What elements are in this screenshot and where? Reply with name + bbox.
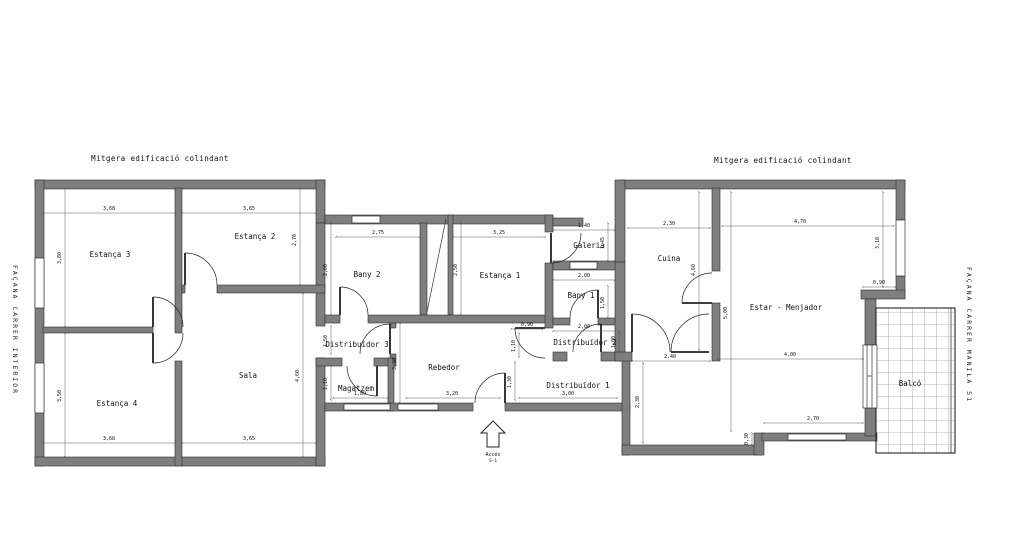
floorplan-page: 3,68 3,65 3,80 2,70 3,50 3,68 3,65 4,60 … xyxy=(0,0,1024,541)
dim-label: 1,50 xyxy=(600,297,606,309)
wall-segment xyxy=(545,215,553,232)
door-arc xyxy=(671,314,709,352)
dim-label: 3,20 xyxy=(446,391,458,397)
room-label-distribuidor2: Distribuïdor 2 xyxy=(553,338,616,347)
window xyxy=(35,258,44,308)
room-label-magatzem: Magatzem xyxy=(338,384,375,393)
wall-segment xyxy=(217,285,325,293)
dim-label: 3,10 xyxy=(875,237,881,249)
wall-segment xyxy=(615,352,632,361)
mitgera-label-right: Mitgera edificació colindant xyxy=(714,156,852,165)
wall-segment xyxy=(553,318,570,325)
door-arc xyxy=(153,333,183,363)
wall-segment xyxy=(35,180,325,189)
dim-label: 1,10 xyxy=(511,340,517,352)
dim-label: 2,70 xyxy=(292,234,298,246)
dim-label: 5,00 xyxy=(723,307,729,319)
wall-segment xyxy=(316,180,325,223)
wall-segment xyxy=(622,445,762,455)
dim-label: 3,25 xyxy=(493,230,505,236)
wall-segment xyxy=(615,180,625,262)
window xyxy=(344,404,390,410)
room-label-rebedor: Rebedor xyxy=(428,363,460,372)
room-label-balco: Balcó xyxy=(899,379,922,388)
dim-label: 2,75 xyxy=(372,230,384,236)
wall-segment xyxy=(712,303,720,361)
wall-segment xyxy=(861,290,905,299)
dim-label: 3,80 xyxy=(57,252,63,264)
dim-label: 2,30 xyxy=(635,396,641,408)
dim-label: 2,50 xyxy=(453,264,459,276)
door-arc xyxy=(632,314,670,352)
dim-label: 2,30 xyxy=(663,221,675,227)
wall-segment xyxy=(325,315,340,323)
door-arc xyxy=(185,253,217,285)
dim-label: 3,00 xyxy=(562,391,574,397)
room-label-estanca3: Estança 3 xyxy=(90,250,131,259)
mitgera-label-left: Mitgera edificació colindant xyxy=(91,154,229,163)
dim-label: 3,50 xyxy=(57,390,63,402)
wall-segment xyxy=(553,352,567,361)
room-label-distribuidor3: Distribuïdor 3 xyxy=(325,340,388,349)
dim-label: 2,70 xyxy=(807,416,819,422)
dim-label: 3,65 xyxy=(243,206,255,212)
dim-label: 0,90 xyxy=(873,280,885,286)
annotations: Mitgera edificació colindant Mitgera edi… xyxy=(11,154,973,464)
wall-segment xyxy=(316,358,342,366)
wall-segment xyxy=(316,358,325,466)
wall-segment xyxy=(420,223,427,315)
dim-label: 0,90 xyxy=(521,322,533,328)
entrance-arrow-icon xyxy=(481,421,505,447)
facana-label-left: FAÇANA CARRER INTERIOR xyxy=(11,265,19,395)
wall-segment xyxy=(175,361,182,466)
window xyxy=(35,363,44,413)
room-label-sala: Sala xyxy=(239,371,257,380)
room-label-distribuidor1: Distribuïdor 1 xyxy=(546,381,609,390)
dim-label: 1,40 xyxy=(578,223,590,229)
wall-segment xyxy=(35,180,44,466)
room-label-estanca1: Estança 1 xyxy=(480,271,521,280)
door-arc xyxy=(475,373,505,403)
dim-label: 4,70 xyxy=(794,219,806,225)
floorplan-drawing: 3,68 3,65 3,80 2,70 3,50 3,68 3,65 4,60 … xyxy=(0,0,1024,541)
window xyxy=(896,220,905,276)
wall-segment xyxy=(896,180,905,220)
window xyxy=(570,262,597,269)
dim-label: 2,60 xyxy=(323,264,329,276)
room-label-estanca4: Estança 4 xyxy=(97,399,138,408)
dim-label: 4,60 xyxy=(295,370,301,382)
wall-segment xyxy=(865,408,876,436)
wall-segment xyxy=(622,360,630,455)
dim-label: 3,65 xyxy=(243,436,255,442)
wall-segment xyxy=(620,180,905,189)
door-arc xyxy=(515,328,545,358)
dim-label: 3,30 xyxy=(392,358,398,370)
dim-label: 1,10 xyxy=(323,378,329,390)
wall-segment xyxy=(865,299,876,345)
room-label-cuina: Cuina xyxy=(658,254,681,263)
dim-label: 1,30 xyxy=(507,376,513,388)
dim-label: 2,00 xyxy=(578,273,590,279)
window xyxy=(352,216,380,223)
dim-label: 4,60 xyxy=(691,264,697,276)
room-label-estar-menjador: Estar - Menjador xyxy=(750,303,823,312)
dim-label: 0,30 xyxy=(744,433,750,445)
room-label-galeria: Galeria xyxy=(573,241,605,250)
balcony-door xyxy=(863,345,877,408)
shaft-diagonal xyxy=(427,219,446,312)
dim-label: 2,40 xyxy=(664,354,676,360)
facana-label-right: FAÇANA CARRER MANILA 51 xyxy=(965,267,973,403)
acces-sub-label: S-1 xyxy=(489,458,497,464)
window xyxy=(788,434,846,440)
acces-label: Accés xyxy=(485,451,500,458)
door-arc xyxy=(360,324,390,354)
wall-segment xyxy=(182,285,185,293)
door-arc xyxy=(340,287,368,315)
window xyxy=(398,404,438,410)
room-label-bany1: Bany 1 xyxy=(567,291,594,300)
dim-label: 2,00 xyxy=(578,324,590,330)
dim-label: 3,68 xyxy=(103,206,115,212)
dim-label: 3,68 xyxy=(103,436,115,442)
door-arc xyxy=(682,273,712,303)
room-label-bany2: Bany 2 xyxy=(353,270,380,279)
dim-label: 4,00 xyxy=(784,352,796,358)
wall-segment xyxy=(545,263,553,328)
wall-segment xyxy=(712,188,720,271)
wall-segment xyxy=(43,327,153,333)
room-label-estanca2: Estança 2 xyxy=(235,232,276,241)
wall-segment xyxy=(505,403,630,411)
